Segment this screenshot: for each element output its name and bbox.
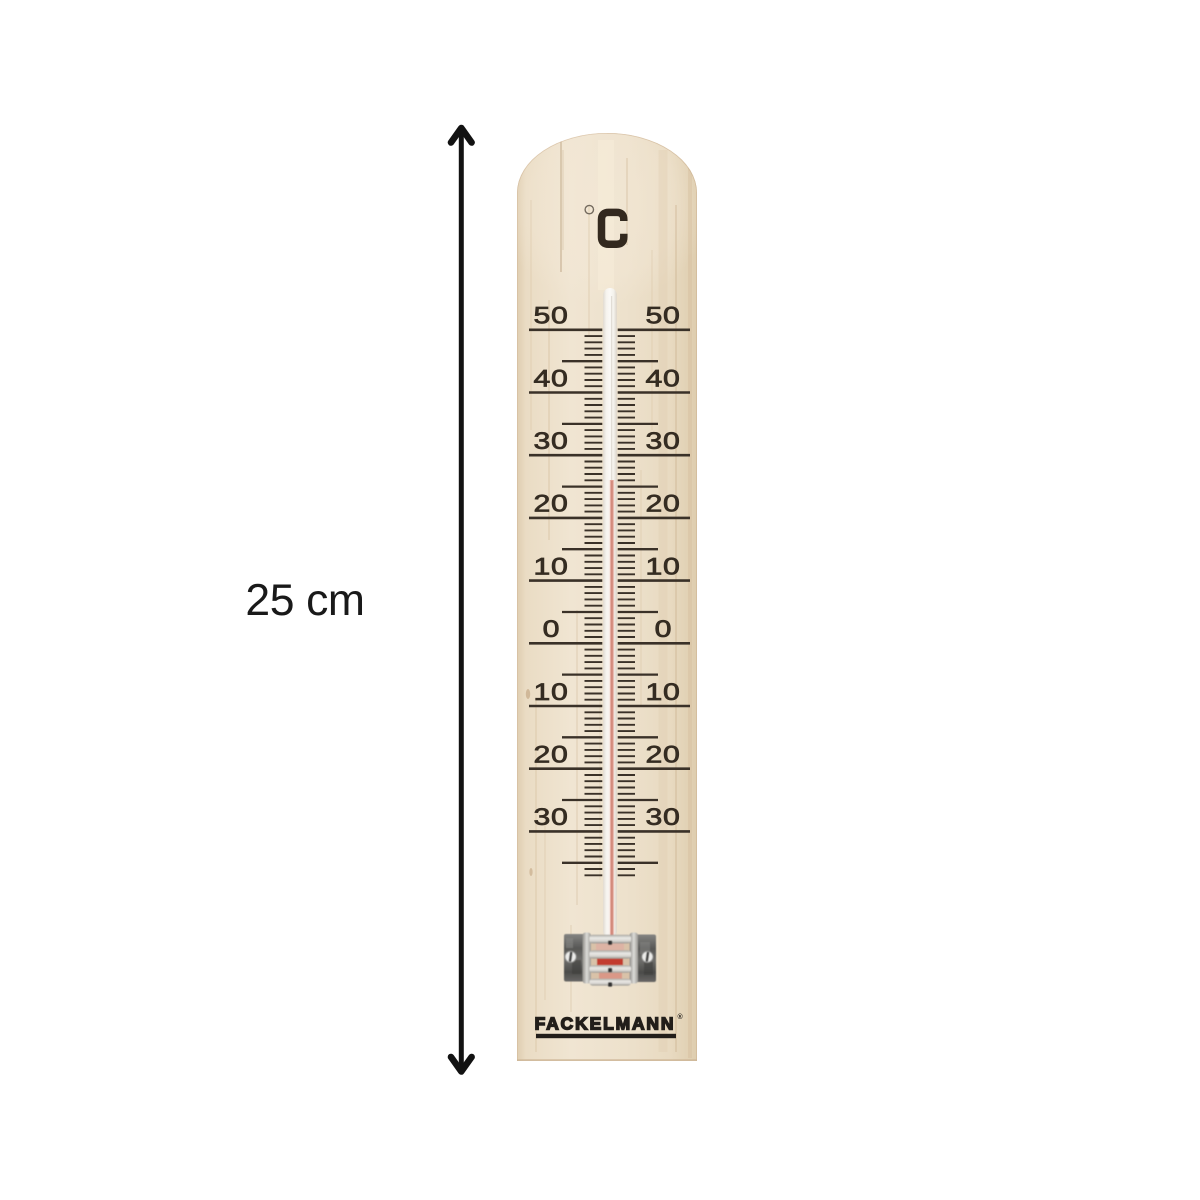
svg-text:®: ® <box>678 1013 684 1021</box>
svg-text:10: 10 <box>646 678 681 705</box>
svg-text:10: 10 <box>534 552 569 579</box>
svg-text:20: 20 <box>534 490 569 517</box>
svg-text:30: 30 <box>534 803 569 830</box>
svg-text:40: 40 <box>534 364 569 391</box>
svg-text:50: 50 <box>534 302 569 329</box>
svg-text:20: 20 <box>534 740 569 767</box>
svg-text:30: 30 <box>646 803 681 830</box>
svg-text:40: 40 <box>646 364 681 391</box>
svg-text:0: 0 <box>655 615 672 642</box>
svg-text:0: 0 <box>543 615 560 642</box>
svg-text:FACKELMANN: FACKELMANN <box>535 1014 676 1034</box>
svg-text:30: 30 <box>534 427 569 454</box>
svg-text:30: 30 <box>646 427 681 454</box>
svg-text:10: 10 <box>646 552 681 579</box>
svg-text:25 cm: 25 cm <box>245 576 364 625</box>
svg-text:10: 10 <box>534 678 569 705</box>
svg-text:50: 50 <box>646 302 681 329</box>
svg-text:20: 20 <box>646 490 681 517</box>
svg-text:20: 20 <box>646 740 681 767</box>
